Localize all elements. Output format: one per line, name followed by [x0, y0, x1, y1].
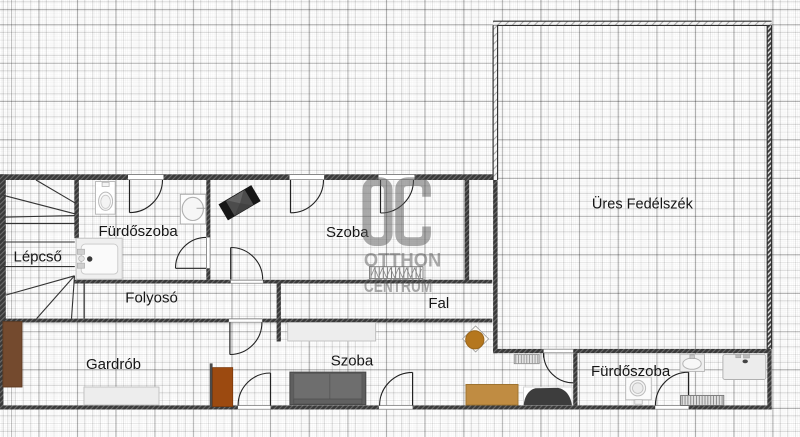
- svg-text:Fürdőszoba: Fürdőszoba: [591, 363, 671, 380]
- svg-text:Fürdőszoba: Fürdőszoba: [99, 223, 179, 240]
- svg-text:Gardrób: Gardrób: [86, 356, 141, 373]
- svg-text:Lépcső: Lépcső: [14, 249, 62, 266]
- svg-text:CENTRUM: CENTRUM: [364, 275, 433, 296]
- svg-text:Üres Fedélszék: Üres Fedélszék: [592, 195, 693, 213]
- svg-text:OTTHON: OTTHON: [364, 250, 441, 272]
- svg-text:Szoba: Szoba: [331, 352, 374, 369]
- svg-text:Folyosó: Folyosó: [125, 290, 178, 307]
- svg-text:Fal: Fal: [428, 295, 449, 312]
